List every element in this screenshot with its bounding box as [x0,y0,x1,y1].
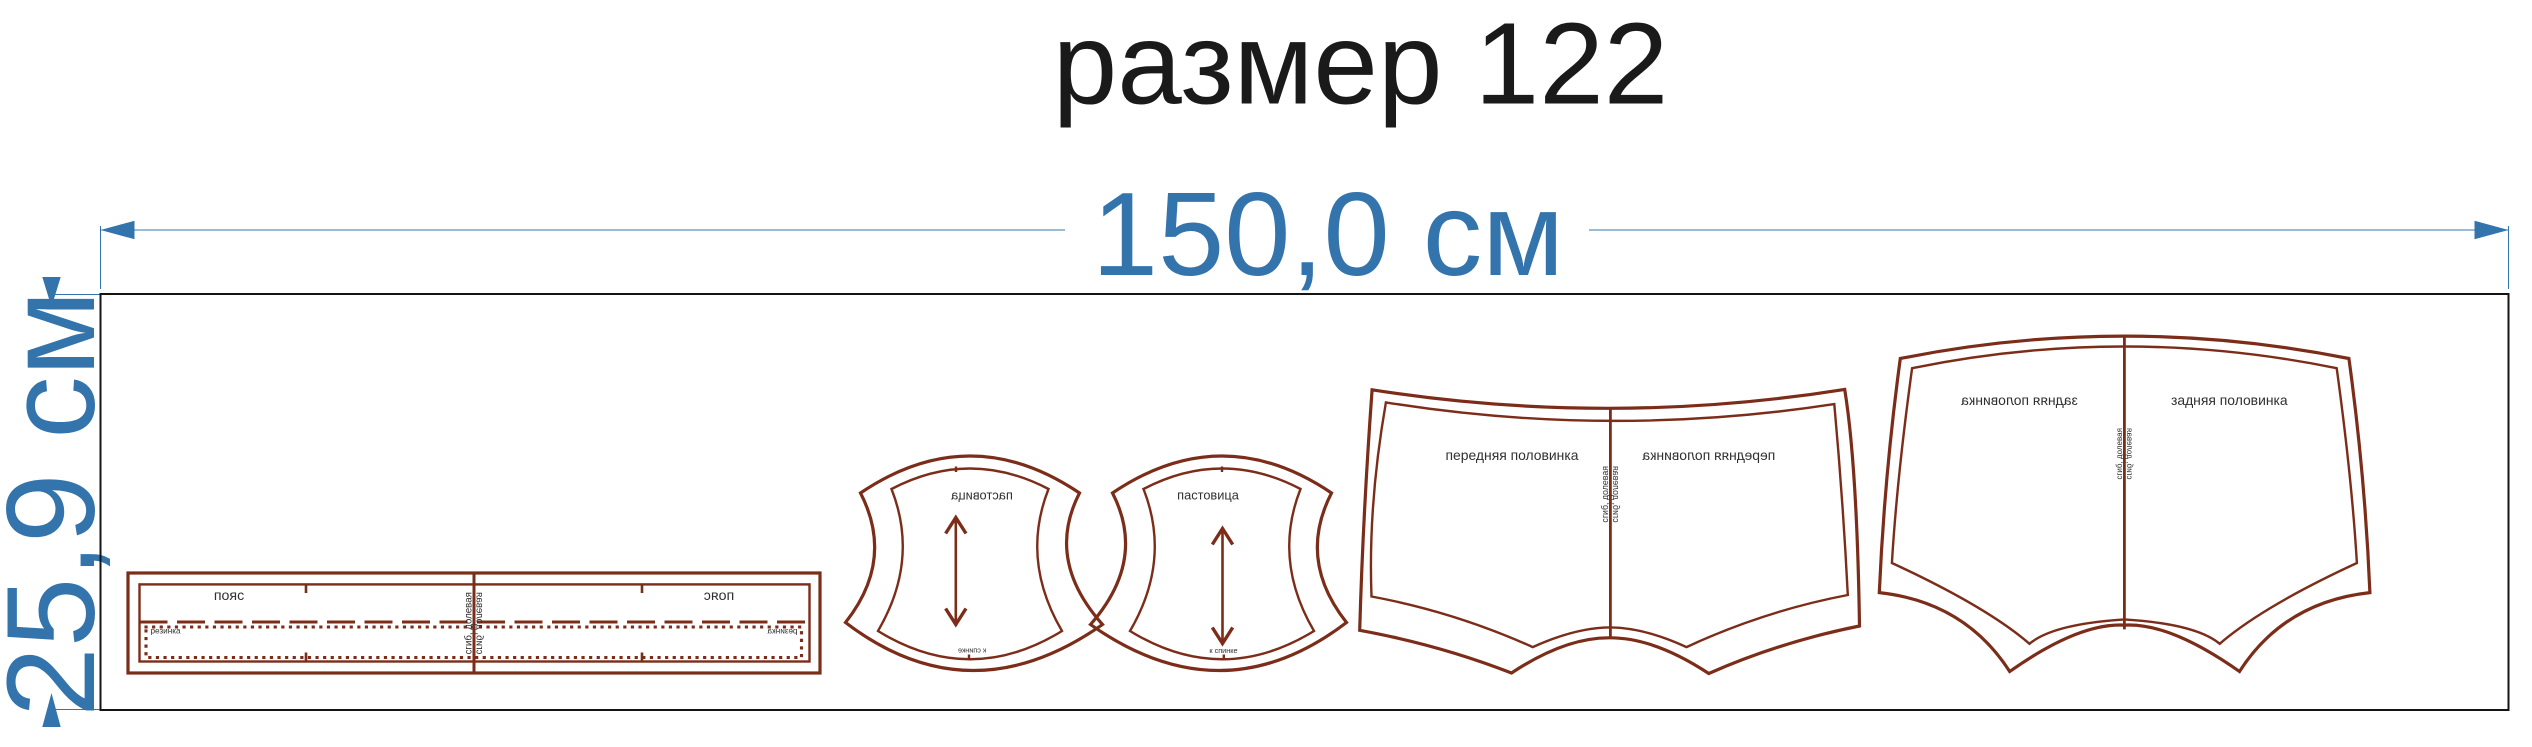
svg-text:резинка: резинка [151,627,182,636]
svg-text:25,9 см: 25,9 см [0,290,121,716]
svg-text:сгиб, долевая: сгиб, долевая [1600,466,1610,523]
svg-text:пояс: пояс [704,588,734,604]
svg-text:пастовица: пастовица [950,488,1013,503]
svg-text:пояс: пояс [214,588,244,604]
svg-text:задняя половинка: задняя половинка [1961,392,2078,408]
svg-text:передняя половинка: передняя половинка [1446,447,1579,463]
svg-text:к спинке: к спинке [1209,646,1237,655]
svg-text:сгиб, долевая: сгиб, долевая [1611,466,1621,523]
svg-text:сгиб, долевая: сгиб, долевая [474,592,485,654]
svg-text:резинка: резинка [767,627,798,636]
svg-text:150,0 см: 150,0 см [1092,168,1564,301]
svg-text:размер 122: размер 122 [1053,0,1668,129]
svg-text:задняя половинка: задняя половинка [2171,392,2288,408]
svg-text:сгиб, долевая: сгиб, долевая [464,592,475,654]
svg-text:пастовица: пастовица [1177,488,1240,503]
svg-text:сгиб, долевая: сгиб, долевая [2115,428,2124,479]
svg-text:передняя половинка: передняя половинка [1642,447,1775,463]
svg-text:сгиб, долевая: сгиб, долевая [2125,428,2134,479]
svg-text:к спинке: к спинке [958,646,986,655]
